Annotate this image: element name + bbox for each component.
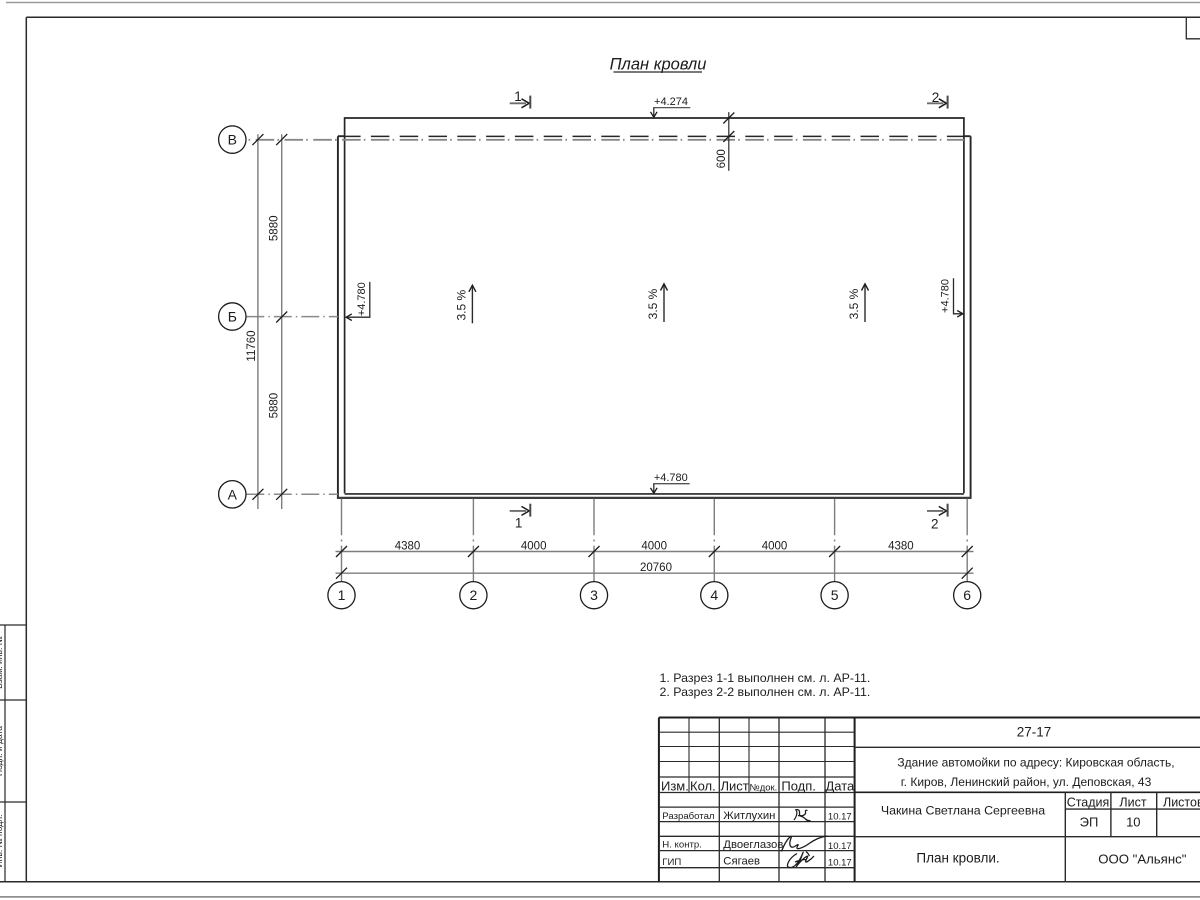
svg-text:4380: 4380	[395, 540, 421, 552]
svg-text:Житлухин: Житлухин	[723, 810, 775, 822]
svg-text:Кол.: Кол.	[690, 778, 716, 793]
svg-text:2: 2	[470, 587, 478, 603]
svg-text:Разработал: Разработал	[662, 811, 714, 822]
svg-text:6: 6	[963, 587, 971, 603]
svg-text:Дата: Дата	[826, 778, 856, 793]
svg-text:4000: 4000	[521, 540, 547, 552]
svg-text:4: 4	[710, 587, 718, 603]
svg-text:2: 2	[931, 517, 939, 532]
svg-text:В: В	[228, 132, 237, 148]
svg-text:+4.274: +4.274	[654, 96, 688, 108]
svg-text:Инв. № подл.: Инв. № подл.	[0, 815, 4, 868]
svg-text:Б: Б	[228, 309, 237, 325]
svg-text:20760: 20760	[640, 562, 672, 574]
svg-text:600: 600	[716, 149, 728, 168]
svg-text:Изм.: Изм.	[661, 778, 689, 793]
svg-text:Листов: Листов	[1163, 796, 1200, 810]
svg-text:3: 3	[590, 587, 598, 603]
svg-text:27-17: 27-17	[1017, 725, 1052, 740]
svg-text:Н. контр.: Н. контр.	[662, 840, 702, 851]
svg-text:10.17: 10.17	[828, 812, 852, 823]
svg-text:2: 2	[932, 90, 940, 105]
svg-text:Двоеглазов: Двоеглазов	[723, 839, 783, 851]
svg-text:11760: 11760	[246, 330, 258, 361]
svg-text:1: 1	[338, 587, 346, 603]
svg-text:Здание автомойки по адресу: Ки: Здание автомойки по адресу: Кировская об…	[897, 756, 1174, 770]
svg-text:План кровли: План кровли	[610, 56, 707, 74]
svg-text:№док.: №док.	[750, 782, 778, 793]
svg-text:Сягаев: Сягаев	[723, 855, 760, 867]
svg-text:ЭП: ЭП	[1080, 815, 1099, 830]
svg-text:10.17: 10.17	[828, 841, 852, 852]
svg-text:5880: 5880	[269, 216, 281, 242]
svg-text:4380: 4380	[888, 540, 914, 552]
svg-text:1: 1	[515, 515, 523, 530]
svg-text:Взам. инв. №: Взам. инв. №	[0, 636, 4, 689]
svg-text:Подп.: Подп.	[781, 778, 816, 793]
svg-text:3.5 %: 3.5 %	[847, 288, 861, 319]
svg-text:10.17: 10.17	[828, 857, 852, 868]
svg-text:10: 10	[1126, 815, 1140, 830]
svg-text:2. Разрез 2-2 выполнен см. л.: 2. Разрез 2-2 выполнен см. л. АР-11.	[660, 685, 871, 699]
svg-text:+4.780: +4.780	[940, 279, 952, 313]
svg-text:Лист: Лист	[721, 778, 749, 793]
svg-text:5: 5	[831, 587, 839, 603]
svg-text:А: А	[228, 486, 238, 502]
svg-text:5880: 5880	[269, 393, 281, 419]
svg-text:Лист: Лист	[1119, 796, 1146, 810]
svg-text:+4.780: +4.780	[356, 282, 368, 316]
svg-text:3.5 %: 3.5 %	[646, 288, 660, 319]
svg-text:План кровли.: План кровли.	[916, 851, 999, 866]
svg-text:3.5 %: 3.5 %	[454, 290, 468, 321]
svg-text:ГИП: ГИП	[662, 857, 681, 868]
svg-text:Чакина Светлана Сергеевна: Чакина Светлана Сергеевна	[881, 804, 1045, 818]
svg-text:Стадия: Стадия	[1067, 796, 1110, 810]
svg-text:+4.780: +4.780	[654, 472, 688, 484]
svg-text:ООО "Альянс": ООО "Альянс"	[1098, 851, 1186, 866]
svg-text:4000: 4000	[641, 540, 667, 552]
svg-text:4000: 4000	[762, 540, 788, 552]
svg-text:Подп. и дата: Подп. и дата	[0, 726, 4, 776]
svg-text:г. Киров, Ленинский район, ул.: г. Киров, Ленинский район, ул. Деповская…	[901, 775, 1152, 789]
svg-text:1. Разрез 1-1 выполнен см. л.: 1. Разрез 1-1 выполнен см. л. АР-11.	[660, 671, 871, 685]
svg-text:1: 1	[514, 89, 522, 104]
